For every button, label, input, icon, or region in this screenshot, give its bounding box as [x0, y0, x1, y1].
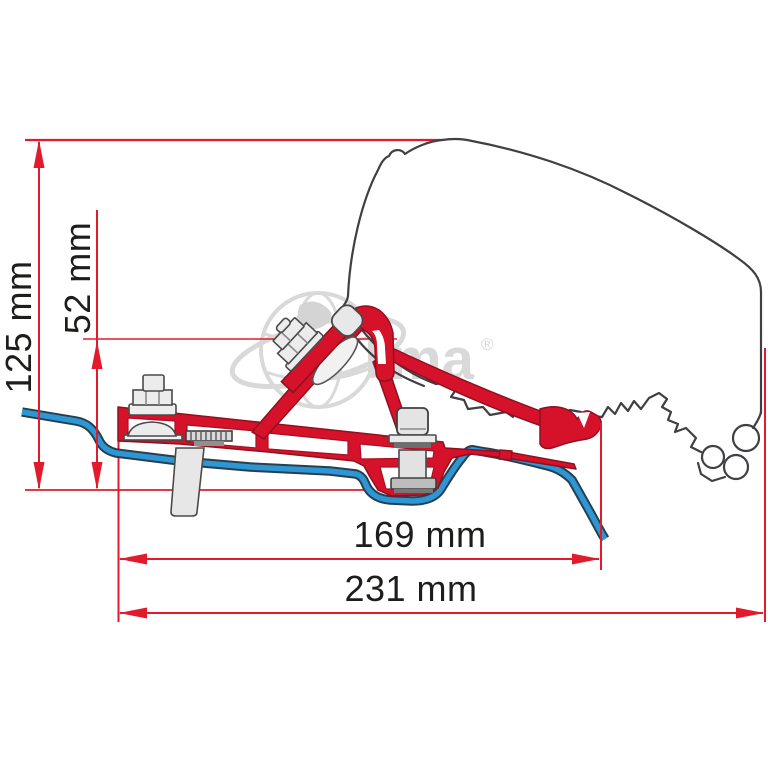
mounting-bolt-left	[129, 375, 176, 415]
arrow-right-icon	[736, 608, 764, 619]
dimension-label-125mm: 125 mm	[0, 260, 39, 393]
arrow-up-icon	[92, 341, 103, 369]
arrow-down-icon	[34, 462, 45, 490]
dimension-label-169mm: 169 mm	[353, 514, 486, 555]
arrow-left-icon	[119, 608, 147, 619]
technical-diagram-page: ma ®	[0, 0, 768, 768]
vehicle-body-fill	[348, 139, 761, 443]
dimension-label-231mm: 231 mm	[344, 568, 477, 609]
bracket-rail-tab	[499, 450, 512, 460]
serrated-clamp-pad	[194, 441, 224, 446]
arrow-up-icon	[34, 140, 45, 168]
serrated-clamp-block	[186, 431, 232, 441]
watermark-registered-icon: ®	[481, 335, 494, 354]
arrow-right-icon	[572, 554, 600, 565]
gutter-seal-b	[724, 455, 748, 479]
awning-adapter-diagram: ma ®	[0, 0, 768, 768]
clamp-post	[171, 448, 204, 516]
gutter-seal-c	[733, 425, 759, 451]
dimension-label-52mm: 52 mm	[57, 222, 98, 335]
arrow-down-icon	[92, 462, 103, 490]
arrow-left-icon	[119, 554, 147, 565]
bracket-far-hook	[540, 407, 601, 449]
gutter-seal-a	[702, 446, 724, 468]
